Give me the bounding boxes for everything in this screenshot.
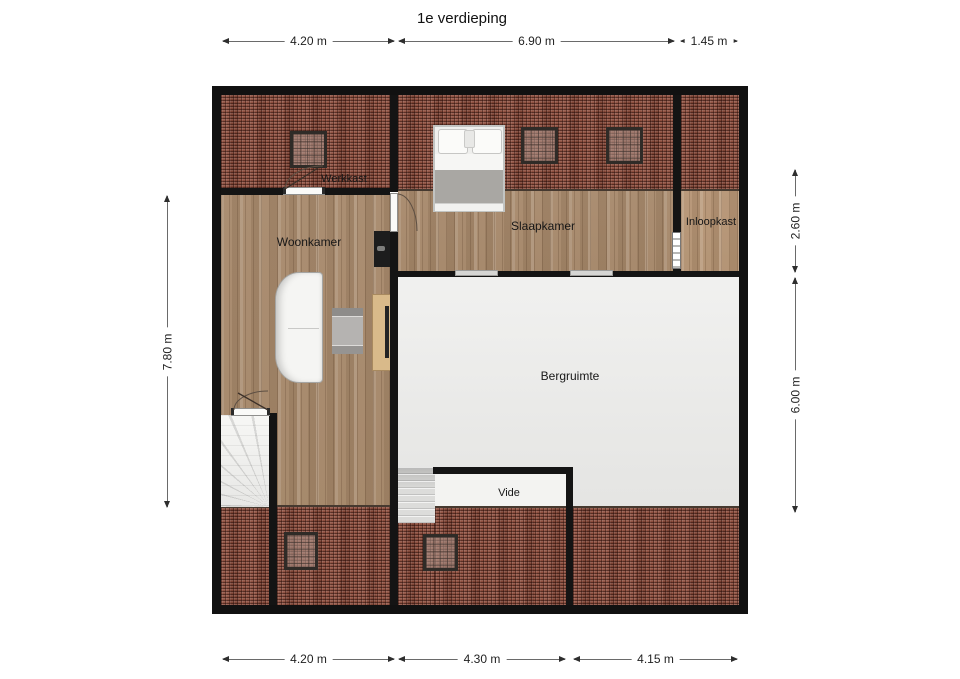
floorplan-page: 1e verdieping (0, 0, 960, 679)
dim-bottom-right: 4.15 m (573, 653, 738, 666)
dim-top-left: 4.20 m (222, 35, 395, 48)
room-label-vide: Vide (498, 487, 520, 499)
dim-right-top: 2.60 m (789, 169, 802, 273)
room-label-bergruimte: Bergruimte (541, 369, 600, 383)
room-label-inloopkast: Inloopkast (686, 216, 736, 228)
dim-bottom-left: 4.20 m (222, 653, 395, 666)
room-label-werkkast: Werkkast (321, 173, 367, 185)
outer-wall (212, 86, 748, 614)
room-label-slaapkamer: Slaapkamer (511, 219, 575, 233)
dim-right-bottom: 6.00 m (789, 277, 802, 513)
dim-top-right: 1.45 m (680, 35, 738, 48)
dim-bottom-middle: 4.30 m (398, 653, 566, 666)
dim-top-middle: 6.90 m (398, 35, 675, 48)
page-title: 1e verdieping (330, 10, 594, 27)
room-label-woonkamer: Woonkamer (277, 235, 341, 249)
dim-left: 7.80 m (161, 195, 174, 508)
